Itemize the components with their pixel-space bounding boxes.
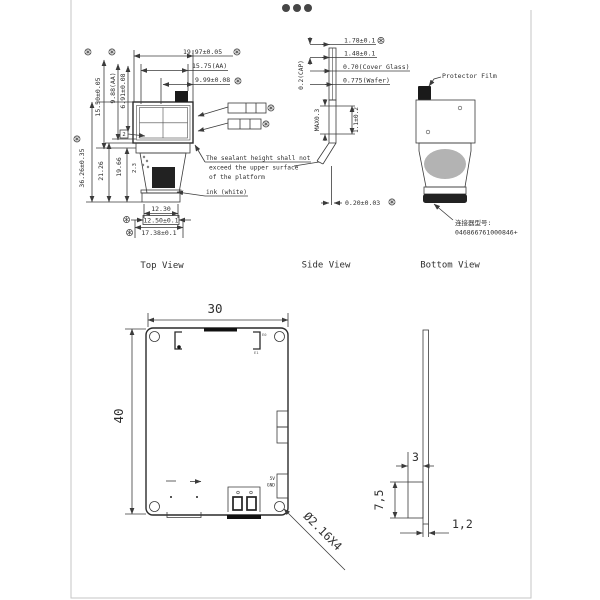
window-dot-icon: [293, 4, 301, 12]
dim-label: 7,5: [372, 490, 386, 511]
dim-label: 12.50±0.1: [143, 217, 178, 225]
board-connector: [423, 194, 467, 203]
dim-label: 19.66: [115, 157, 123, 177]
dim-label: 21.26: [97, 161, 105, 181]
dim-label: 0.2(CAP): [298, 60, 305, 90]
dim-label: 15.50±0.05: [94, 77, 102, 116]
dim-label: 0.70(Cover Glass): [343, 63, 410, 71]
fpc-bump: [175, 91, 188, 102]
mounting-hole: [150, 502, 160, 512]
ink-label: ink (white): [206, 189, 247, 196]
pcb-front-view: 30 40 E0 E1 5V GND Ø2.16X4: [111, 301, 345, 570]
inspection-mark-icon: [85, 49, 91, 55]
protector-film-block: [418, 86, 431, 100]
balloon-label: 2: [122, 132, 125, 138]
usb-tongue: [227, 515, 261, 519]
tape-strips: [198, 103, 274, 131]
dim-label: 1.48±0.1: [344, 50, 375, 58]
connector-side: [408, 482, 423, 518]
protector-film-label: Protector Film: [442, 72, 497, 80]
driver-ic: [152, 167, 175, 188]
module-back: [416, 100, 475, 143]
side-view: 1.78±0.1 1.48±0.1 0.70(Cover Glass) 0.77…: [294, 37, 410, 271]
connector-pads: [142, 193, 180, 202]
wafer-stack: [329, 100, 336, 143]
inspection-mark-icon: [126, 229, 132, 235]
note-text: exceed the upper surface: [209, 165, 299, 172]
tag-label: E1: [254, 350, 259, 355]
dim-label: 1,2: [452, 517, 473, 531]
pin-label: GND: [267, 483, 275, 489]
usb-pad: [247, 497, 256, 510]
inspection-mark-icon: [74, 136, 80, 142]
platform: [136, 143, 190, 153]
dim-label: 0.20±0.03: [345, 199, 380, 207]
hole-callout: Ø2.16X4: [301, 509, 345, 553]
dim-label: MAX0.3: [314, 109, 321, 132]
dim-label: 1.1±0.2: [353, 107, 360, 133]
connector-type-label: 连接器型号:: [455, 218, 491, 227]
tag-label: E0: [262, 332, 267, 337]
dim-label: 9.99±0.08: [195, 76, 230, 84]
dim-label: 3: [412, 450, 419, 464]
dim-label: 0.775(Wafer): [343, 77, 390, 85]
dim-label: 6.91±0.08: [119, 73, 127, 108]
note-text: of the platform: [209, 174, 265, 181]
inspection-mark-icon: [268, 105, 274, 111]
dim-label: 1.78±0.1: [344, 37, 375, 45]
dim-label: 15.75(AA): [192, 62, 227, 70]
dim-label: 2.3: [132, 163, 138, 173]
inspection-mark-icon: [389, 199, 395, 205]
note-text: The sealant height shall not: [206, 155, 311, 162]
drawing-page: 19.97±0.05 15.75(AA) 9.99±0.08 15.50±0.0…: [0, 0, 600, 600]
inspection-mark-icon: [263, 121, 269, 127]
top-view: 19.97±0.05 15.75(AA) 9.99±0.08 15.50±0.0…: [74, 48, 311, 271]
dim-label: 30: [207, 301, 222, 316]
mounting-hole: [275, 332, 285, 342]
sealant-note: The sealant height shall not exceed the …: [177, 145, 311, 196]
usb-pad: [233, 497, 242, 510]
side-pad: [277, 411, 288, 427]
sealant-blob: [424, 149, 466, 179]
inspection-mark-icon: [123, 216, 129, 222]
inspection-mark-icon: [234, 49, 240, 55]
window-dot-icon: [304, 4, 312, 12]
mounting-hole: [275, 502, 285, 512]
window-dot-icon: [282, 4, 290, 12]
pin-label: 5V: [270, 476, 276, 482]
bottom-view: Protector Film 连接器型号: 046866761000846+ B…: [416, 72, 518, 271]
dim-label: 19.97±0.05: [183, 48, 222, 56]
mounting-hole: [150, 332, 160, 342]
view-label: Side View: [302, 261, 351, 271]
dim-label: 36.26±0.35: [78, 148, 86, 187]
inspection-mark-icon: [235, 78, 241, 84]
dim-label: 40: [111, 408, 126, 423]
dim-label: 17.38±0.1: [141, 229, 176, 237]
view-label: Bottom View: [420, 261, 480, 271]
connector-part-number: 046866761000846+: [455, 229, 518, 237]
side-pad: [277, 427, 288, 443]
view-label: Top View: [140, 261, 184, 271]
engineering-drawing: 19.97±0.05 15.75(AA) 9.99±0.08 15.50±0.0…: [0, 0, 600, 600]
dim-label: 9.88(AA): [109, 72, 117, 103]
pcb-edge: [423, 330, 429, 524]
power-pad: [277, 474, 288, 498]
edge-mark: [204, 328, 237, 332]
inspection-mark-icon: [378, 37, 384, 43]
dim-label: 12.30: [151, 205, 171, 213]
window-dots: [282, 4, 312, 12]
inspection-mark-icon: [109, 49, 115, 55]
fiducial-bracket: [253, 332, 260, 349]
pcb-side-view: 3 7,5 1,2: [372, 330, 473, 537]
